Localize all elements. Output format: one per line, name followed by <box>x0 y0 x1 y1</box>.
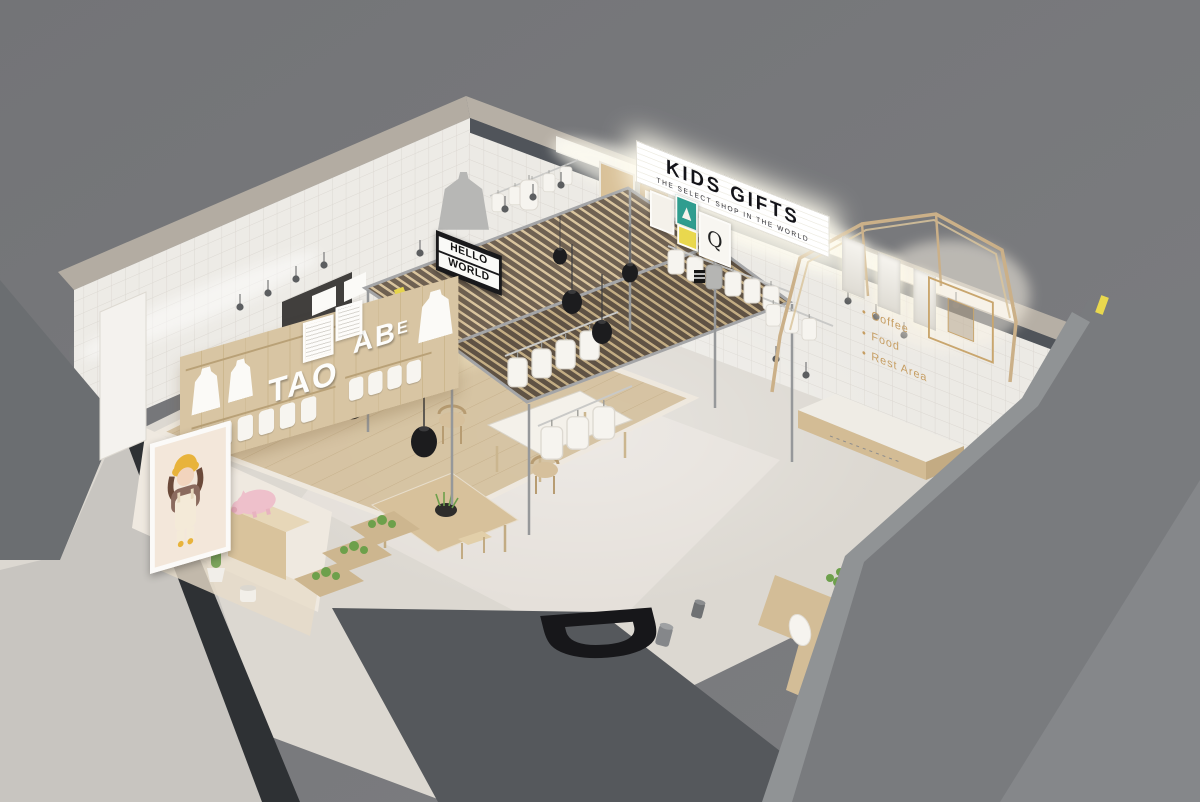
floor-letter-d: D <box>515 600 682 667</box>
garment <box>368 370 382 396</box>
niche <box>842 236 865 299</box>
amenity-logo <box>948 298 974 342</box>
bullet: • <box>862 302 867 325</box>
bullet: • <box>862 343 867 366</box>
garment <box>349 376 363 402</box>
garment <box>301 395 316 423</box>
store-render: KIDS GIFTS THE SELECT SHOP IN THE WORLD … <box>0 0 1200 802</box>
girl-illustration <box>155 430 216 558</box>
q-letter: Q <box>707 224 722 254</box>
garment <box>280 401 295 429</box>
q-artwork: Q <box>699 211 731 268</box>
garment <box>387 364 401 390</box>
girl-poster <box>150 420 231 574</box>
fitting-mirror <box>100 292 146 460</box>
triangle-motif <box>682 206 691 222</box>
bullet: • <box>862 323 867 346</box>
mannequin-dress <box>418 285 453 343</box>
niche <box>878 252 901 315</box>
e-part: E <box>397 316 410 339</box>
garment <box>259 408 274 436</box>
dress <box>228 356 253 403</box>
bucket <box>240 585 256 602</box>
garment <box>407 359 421 385</box>
picture-frame <box>650 190 674 236</box>
dress <box>192 363 221 415</box>
garment <box>238 414 253 442</box>
